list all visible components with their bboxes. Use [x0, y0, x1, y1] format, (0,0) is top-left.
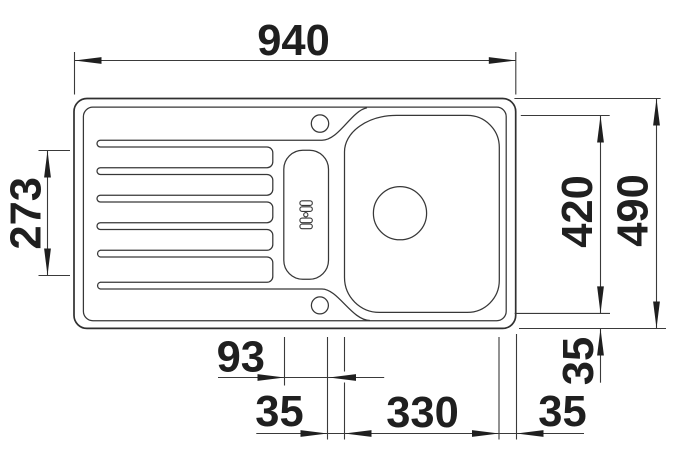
- svg-text:330: 330: [386, 389, 459, 437]
- svg-text:940: 940: [257, 17, 330, 65]
- svg-text:273: 273: [2, 177, 50, 250]
- svg-text:35: 35: [255, 388, 303, 436]
- svg-text:35: 35: [538, 388, 586, 436]
- svg-text:93: 93: [217, 333, 265, 381]
- svg-text:35: 35: [555, 337, 603, 385]
- svg-text:490: 490: [609, 174, 657, 247]
- svg-text:420: 420: [554, 175, 602, 248]
